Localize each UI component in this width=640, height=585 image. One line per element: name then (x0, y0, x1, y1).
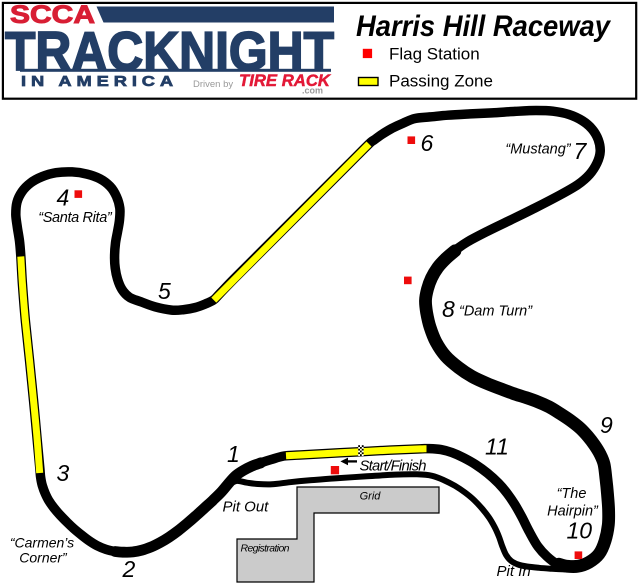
svg-text:9: 9 (600, 412, 613, 438)
svg-text:Start/Finish: Start/Finish (360, 458, 427, 474)
svg-text:“Carmen’s: “Carmen’s (10, 535, 74, 551)
svg-text:1: 1 (227, 441, 240, 467)
svg-text:Pit Out: Pit Out (223, 499, 270, 516)
svg-text:6: 6 (421, 130, 434, 156)
svg-text:“Santa Rita”: “Santa Rita” (38, 210, 113, 226)
svg-text:8: 8 (442, 296, 455, 322)
svg-text:3: 3 (57, 460, 70, 486)
svg-text:Grid: Grid (360, 491, 382, 503)
svg-text:Harris Hill Raceway: Harris Hill Raceway (356, 10, 611, 43)
svg-text:11: 11 (485, 434, 509, 460)
svg-text:4: 4 (57, 185, 70, 211)
svg-text:“Dam Turn”: “Dam Turn” (459, 304, 533, 320)
svg-text:Pit In: Pit In (497, 563, 531, 580)
svg-text:2: 2 (122, 556, 136, 582)
svg-text:Passing Zone: Passing Zone (389, 72, 493, 91)
svg-text:Corner”: Corner” (19, 549, 68, 565)
svg-text:“Mustang”: “Mustang” (505, 142, 571, 158)
svg-text:Driven by: Driven by (193, 79, 233, 90)
svg-text:“The: “The (557, 486, 587, 502)
svg-text:IN AMERICA: IN AMERICA (21, 73, 178, 90)
svg-text:Flag Station: Flag Station (389, 45, 480, 64)
svg-text:10: 10 (567, 518, 593, 544)
svg-text:5: 5 (158, 278, 171, 304)
svg-text:Registration: Registration (241, 542, 290, 554)
svg-text:7: 7 (574, 138, 588, 164)
svg-text:.com: .com (302, 86, 323, 96)
